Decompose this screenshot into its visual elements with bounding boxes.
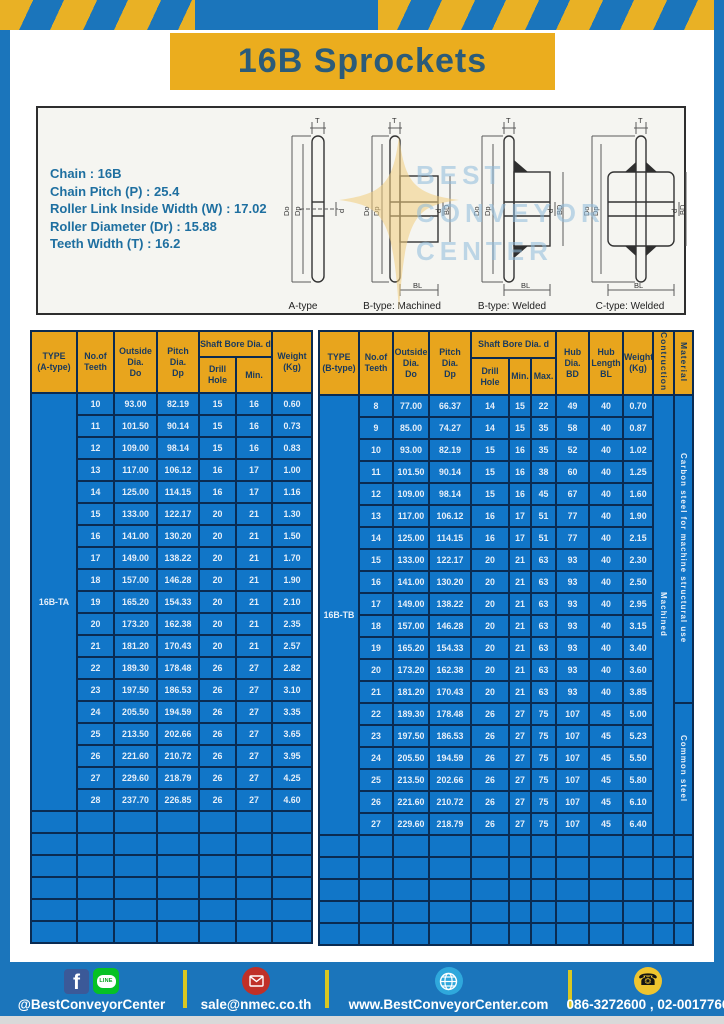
footer-phone-section: ☎ 086-3272600 , 02-0017766 xyxy=(572,962,724,1016)
table-cell: 22 xyxy=(531,395,556,417)
table-cell: 106.12 xyxy=(429,505,471,527)
table-cell: 40 xyxy=(589,395,623,417)
table-cell: 117.00 xyxy=(393,505,429,527)
table-cell: 125.00 xyxy=(114,481,157,503)
table-cell: 162.38 xyxy=(429,659,471,681)
empty-cell xyxy=(31,877,77,899)
table-cell: 15 xyxy=(77,503,114,525)
table-cell: 165.20 xyxy=(114,591,157,613)
table-row: 15133.00122.1720216393402.30 xyxy=(319,549,693,571)
col-header-material: Material xyxy=(674,331,693,395)
empty-cell xyxy=(77,921,114,943)
table-row: 16B-TA1093.0082.1915160.60 xyxy=(31,393,312,415)
empty-cell xyxy=(509,835,531,857)
dim-label-dp: Dp xyxy=(591,206,600,216)
empty-cell xyxy=(429,857,471,879)
empty-cell xyxy=(114,811,157,833)
catalog-page: 16B Sprockets Chain : 16B Chain Pitch (P… xyxy=(0,0,724,1024)
table-cell: 93 xyxy=(556,681,589,703)
table-row: 22189.30178.48262775107455.00Common stee… xyxy=(319,703,693,725)
table-row: 18157.00146.2820216393403.15 xyxy=(319,615,693,637)
empty-cell xyxy=(531,901,556,923)
table-cell: 20 xyxy=(199,503,236,525)
table-cell: 15 xyxy=(199,415,236,437)
table-cell: 35 xyxy=(531,439,556,461)
empty-cell xyxy=(157,877,199,899)
table-cell: 93 xyxy=(556,659,589,681)
dim-label-do: Do xyxy=(362,206,371,216)
hazard-bar xyxy=(0,0,724,30)
empty-cell xyxy=(509,857,531,879)
table-cell: 1.50 xyxy=(272,525,312,547)
table-cell: 20 xyxy=(471,615,509,637)
table-row: 14125.00114.1516175177402.15 xyxy=(319,527,693,549)
table-cell: 45 xyxy=(589,725,623,747)
spec-table-a-type: TYPE (A-type) No.of Teeth Outside Dia. D… xyxy=(30,330,313,944)
table-cell: 63 xyxy=(531,549,556,571)
table-cell: 194.59 xyxy=(157,701,199,723)
table-cell: 45 xyxy=(531,483,556,505)
table-row: 21181.20170.4320216393403.85 xyxy=(319,681,693,703)
table-row xyxy=(319,879,693,901)
empty-cell xyxy=(429,901,471,923)
table-cell: 21 xyxy=(359,681,393,703)
table-cell: 26 xyxy=(199,657,236,679)
title-banner: 16B Sprockets xyxy=(170,33,555,90)
empty-cell xyxy=(157,833,199,855)
table-row xyxy=(319,923,693,945)
table-cell: 27 xyxy=(509,747,531,769)
empty-cell xyxy=(199,921,236,943)
table-cell: 98.14 xyxy=(429,483,471,505)
table-cell: 2.57 xyxy=(272,635,312,657)
table-cell: 21 xyxy=(236,569,272,591)
table-cell: 15 xyxy=(471,461,509,483)
empty-cell xyxy=(589,901,623,923)
empty-cell xyxy=(77,877,114,899)
table-cell: 202.66 xyxy=(429,769,471,791)
table-cell: 26 xyxy=(471,791,509,813)
empty-cell xyxy=(471,835,509,857)
table-cell: 1.90 xyxy=(272,569,312,591)
table-cell: 165.20 xyxy=(393,637,429,659)
dim-label-bl: BL xyxy=(634,281,643,290)
table-cell: 82.19 xyxy=(429,439,471,461)
table-cell: 197.50 xyxy=(393,725,429,747)
table-cell: 0.70 xyxy=(623,395,653,417)
table-cell: 170.43 xyxy=(429,681,471,703)
table-cell: 3.40 xyxy=(623,637,653,659)
table-cell: 3.35 xyxy=(272,701,312,723)
table-row xyxy=(319,857,693,879)
col-header-min: Min. xyxy=(236,357,272,393)
technical-drawings: T Do Dp d A-type xyxy=(258,114,686,314)
table-cell: 21 xyxy=(509,549,531,571)
phone-icon: ☎ xyxy=(634,967,662,995)
table-cell: 154.33 xyxy=(157,591,199,613)
table-cell: 4.25 xyxy=(272,767,312,789)
table-cell: 189.30 xyxy=(114,657,157,679)
table-cell: 40 xyxy=(589,549,623,571)
col-header-min: Min. xyxy=(509,358,531,395)
table-cell: 109.00 xyxy=(393,483,429,505)
table-row xyxy=(31,877,312,899)
drawing-b-machined: T Do Dp d BD xyxy=(350,114,454,314)
table-cell: 229.60 xyxy=(393,813,429,835)
table-cell: 77.00 xyxy=(393,395,429,417)
hazard-stripes-right xyxy=(378,0,714,30)
table-cell: 19 xyxy=(359,637,393,659)
table-cell: 3.65 xyxy=(272,723,312,745)
table-cell: 17 xyxy=(77,547,114,569)
table-cell: 18 xyxy=(359,615,393,637)
table-cell: 75 xyxy=(531,703,556,725)
table-cell: 14 xyxy=(77,481,114,503)
empty-cell xyxy=(589,835,623,857)
table-cell: 17 xyxy=(509,505,531,527)
table-cell: 1.02 xyxy=(623,439,653,461)
table-row: 26221.60210.72262775107456.10 xyxy=(319,791,693,813)
table-row: 16B-TB877.0066.3714152249400.70MachinedC… xyxy=(319,395,693,417)
table-cell: 15 xyxy=(509,417,531,439)
table-a-header: TYPE (A-type) No.of Teeth Outside Dia. D… xyxy=(31,331,312,393)
table-cell: 20 xyxy=(199,569,236,591)
dim-label-dp: Dp xyxy=(293,206,302,216)
table-cell: 15 xyxy=(359,549,393,571)
table-cell: 16 xyxy=(236,437,272,459)
empty-cell xyxy=(319,857,359,879)
table-cell: 16 xyxy=(359,571,393,593)
table-cell: 221.60 xyxy=(114,745,157,767)
empty-cell xyxy=(114,899,157,921)
table-cell: 218.79 xyxy=(429,813,471,835)
empty-cell xyxy=(556,835,589,857)
table-row xyxy=(31,833,312,855)
table-cell: 133.00 xyxy=(393,549,429,571)
table-cell: 26 xyxy=(199,767,236,789)
table-cell: 15 xyxy=(509,395,531,417)
empty-cell xyxy=(674,923,693,945)
dim-label-bl: BL xyxy=(521,281,530,290)
empty-cell xyxy=(319,835,359,857)
footer-social-handle: @BestConveyorCenter xyxy=(18,997,165,1012)
table-cell: 93.00 xyxy=(393,439,429,461)
empty-cell xyxy=(77,899,114,921)
dim-label-t: T xyxy=(392,116,397,125)
spec-line-roller-width: Roller Link Inside Width (W) : 17.02 xyxy=(50,200,267,218)
empty-cell xyxy=(359,835,393,857)
construction-cell: Machined xyxy=(653,395,674,835)
table-cell: 229.60 xyxy=(114,767,157,789)
table-a-body: 16B-TA1093.0082.1915160.6011101.5090.141… xyxy=(31,393,312,943)
empty-cell xyxy=(199,855,236,877)
table-cell: 21 xyxy=(509,593,531,615)
line-icon: LINE xyxy=(93,968,119,994)
table-cell: 26 xyxy=(471,813,509,835)
table-cell: 17 xyxy=(509,527,531,549)
table-cell: 0.83 xyxy=(272,437,312,459)
empty-cell xyxy=(236,877,272,899)
empty-cell xyxy=(236,921,272,943)
table-cell: 27 xyxy=(509,813,531,835)
empty-cell xyxy=(509,879,531,901)
table-cell: 20 xyxy=(199,525,236,547)
col-header-drill: Drill Hole xyxy=(471,358,509,395)
table-cell: 157.00 xyxy=(393,615,429,637)
table-cell: 221.60 xyxy=(393,791,429,813)
table-cell: 1.16 xyxy=(272,481,312,503)
table-cell: 20 xyxy=(199,635,236,657)
table-cell: 27 xyxy=(359,813,393,835)
empty-cell xyxy=(471,879,509,901)
col-header-teeth: No.of Teeth xyxy=(77,331,114,393)
table-cell: 21 xyxy=(236,613,272,635)
table-cell: 40 xyxy=(589,615,623,637)
table-cell: 16 xyxy=(199,481,236,503)
table-cell: 40 xyxy=(589,527,623,549)
empty-cell xyxy=(471,901,509,923)
table-cell: 26 xyxy=(471,769,509,791)
table-cell: 75 xyxy=(531,813,556,835)
table-cell: 21 xyxy=(236,591,272,613)
table-cell: 107 xyxy=(556,703,589,725)
type-label-cell: 16B-TA xyxy=(31,393,77,811)
dim-label-bl: BL xyxy=(413,281,422,290)
table-cell: 141.00 xyxy=(393,571,429,593)
table-cell: 106.12 xyxy=(157,459,199,481)
table-cell: 107 xyxy=(556,791,589,813)
empty-cell xyxy=(199,811,236,833)
bottom-edge-strip xyxy=(0,1016,724,1024)
table-cell: 63 xyxy=(531,615,556,637)
empty-cell xyxy=(31,833,77,855)
table-cell: 18 xyxy=(77,569,114,591)
table-cell: 2.30 xyxy=(623,549,653,571)
empty-cell xyxy=(199,877,236,899)
table-cell: 107 xyxy=(556,747,589,769)
empty-cell xyxy=(471,857,509,879)
table-cell: 25 xyxy=(77,723,114,745)
table-row: 25213.50202.66262775107455.80 xyxy=(319,769,693,791)
table-cell: 17 xyxy=(359,593,393,615)
table-cell: 213.50 xyxy=(393,769,429,791)
empty-cell xyxy=(199,899,236,921)
table-cell: 40 xyxy=(589,659,623,681)
col-header-weight: Weight (Kg) xyxy=(623,331,653,395)
table-cell: 117.00 xyxy=(114,459,157,481)
table-cell: 16 xyxy=(236,393,272,415)
spec-table-b-type: TYPE (B-type) No.of Teeth Outside Dia. D… xyxy=(318,330,694,946)
table-cell: 1.70 xyxy=(272,547,312,569)
drawing-a-type: T Do Dp d A-type xyxy=(258,114,348,314)
table-cell: 205.50 xyxy=(393,747,429,769)
table-cell: 75 xyxy=(531,725,556,747)
table-cell: 27 xyxy=(236,767,272,789)
table-cell: 74.27 xyxy=(429,417,471,439)
dim-label-do: Do xyxy=(282,206,291,216)
table-cell: 13 xyxy=(359,505,393,527)
table-cell: 1.30 xyxy=(272,503,312,525)
table-cell: 77 xyxy=(556,505,589,527)
table-cell: 14 xyxy=(359,527,393,549)
table-cell: 125.00 xyxy=(393,527,429,549)
empty-cell xyxy=(77,811,114,833)
table-row: 27229.60218.79262775107456.40 xyxy=(319,813,693,835)
table-cell: 20 xyxy=(359,659,393,681)
empty-cell xyxy=(236,899,272,921)
table-row: 16141.00130.2020216393402.50 xyxy=(319,571,693,593)
table-cell: 20 xyxy=(77,613,114,635)
table-cell: 13 xyxy=(77,459,114,481)
dim-label-bd: BD xyxy=(442,204,451,215)
table-cell: 21 xyxy=(509,681,531,703)
table-cell: 45 xyxy=(589,769,623,791)
empty-cell xyxy=(157,855,199,877)
empty-cell xyxy=(77,833,114,855)
empty-cell xyxy=(272,877,312,899)
table-cell: 210.72 xyxy=(157,745,199,767)
table-cell: 1.90 xyxy=(623,505,653,527)
table-cell: 40 xyxy=(589,571,623,593)
table-cell: 45 xyxy=(589,813,623,835)
table-cell: 14 xyxy=(471,417,509,439)
table-cell: 22 xyxy=(359,703,393,725)
empty-cell xyxy=(31,899,77,921)
spec-line-teeth-width: Teeth Width (T) : 16.2 xyxy=(50,235,267,253)
table-cell: 101.50 xyxy=(114,415,157,437)
table-row xyxy=(319,901,693,923)
table-cell: 16 xyxy=(509,461,531,483)
table-cell: 16 xyxy=(471,505,509,527)
empty-cell xyxy=(623,923,653,945)
table-cell: 20 xyxy=(199,613,236,635)
table-cell: 26 xyxy=(77,745,114,767)
table-cell: 93 xyxy=(556,571,589,593)
empty-cell xyxy=(319,901,359,923)
table-cell: 93 xyxy=(556,637,589,659)
table-cell: 6.10 xyxy=(623,791,653,813)
table-cell: 6.40 xyxy=(623,813,653,835)
table-cell: 149.00 xyxy=(114,547,157,569)
table-row: 20173.20162.3820216393403.60 xyxy=(319,659,693,681)
empty-cell xyxy=(429,879,471,901)
table-cell: 90.14 xyxy=(157,415,199,437)
footer-website-section: www.BestConveyorCenter.com xyxy=(329,962,568,1016)
dim-label-do: Do xyxy=(472,206,481,216)
table-cell: 98.14 xyxy=(157,437,199,459)
table-cell: 189.30 xyxy=(393,703,429,725)
table-cell: 21 xyxy=(509,615,531,637)
table-row: 985.0074.2714153558400.87 xyxy=(319,417,693,439)
empty-cell xyxy=(393,879,429,901)
table-cell: 24 xyxy=(359,747,393,769)
table-cell: 63 xyxy=(531,571,556,593)
empty-cell xyxy=(319,879,359,901)
table-cell: 170.43 xyxy=(157,635,199,657)
empty-cell xyxy=(272,855,312,877)
table-cell: 15 xyxy=(199,393,236,415)
contact-footer: f LINE @BestConveyorCenter sale@nmec.co.… xyxy=(0,962,724,1016)
table-cell: 9 xyxy=(359,417,393,439)
empty-cell xyxy=(531,879,556,901)
table-cell: 66.37 xyxy=(429,395,471,417)
table-cell: 20 xyxy=(471,571,509,593)
dim-label-t: T xyxy=(315,116,320,125)
empty-cell xyxy=(114,921,157,943)
table-cell: 130.20 xyxy=(429,571,471,593)
empty-cell xyxy=(114,833,157,855)
table-cell: 213.50 xyxy=(114,723,157,745)
table-cell: 1.25 xyxy=(623,461,653,483)
facebook-icon: f xyxy=(64,969,89,994)
table-cell: 26 xyxy=(199,723,236,745)
table-cell: 27 xyxy=(236,657,272,679)
dim-label-do: Do xyxy=(582,206,591,216)
table-cell: 77 xyxy=(556,527,589,549)
empty-cell xyxy=(556,879,589,901)
drawing-c-welded: T Do Dp d xyxy=(570,114,690,314)
empty-cell xyxy=(653,879,674,901)
table-cell: 5.80 xyxy=(623,769,653,791)
table-cell: 14 xyxy=(471,395,509,417)
footer-website: www.BestConveyorCenter.com xyxy=(349,997,549,1012)
table-cell: 107 xyxy=(556,769,589,791)
drawing-caption-a: A-type xyxy=(289,301,318,312)
table-cell: 114.15 xyxy=(429,527,471,549)
table-cell: 15 xyxy=(199,437,236,459)
empty-cell xyxy=(199,833,236,855)
empty-cell xyxy=(31,921,77,943)
table-row xyxy=(31,921,312,943)
table-cell: 27 xyxy=(509,769,531,791)
table-cell: 21 xyxy=(509,571,531,593)
empty-cell xyxy=(157,899,199,921)
table-cell: 16 xyxy=(236,415,272,437)
table-cell: 40 xyxy=(589,439,623,461)
table-cell: 3.10 xyxy=(272,679,312,701)
table-cell: 51 xyxy=(531,527,556,549)
dim-label-dp: Dp xyxy=(483,206,492,216)
empty-cell xyxy=(556,857,589,879)
table-cell: 20 xyxy=(471,659,509,681)
table-cell: 3.95 xyxy=(272,745,312,767)
empty-cell xyxy=(674,901,693,923)
table-cell: 27 xyxy=(77,767,114,789)
table-cell: 40 xyxy=(589,593,623,615)
table-cell: 93 xyxy=(556,593,589,615)
table-cell: 35 xyxy=(531,417,556,439)
col-header-drill: Drill Hole xyxy=(199,357,236,393)
empty-cell xyxy=(114,855,157,877)
empty-cell xyxy=(393,901,429,923)
empty-cell xyxy=(589,857,623,879)
table-cell: 5.50 xyxy=(623,747,653,769)
dim-label-d: d xyxy=(546,209,555,213)
dim-label-bd: BD xyxy=(555,204,564,215)
table-cell: 40 xyxy=(589,483,623,505)
table-cell: 22 xyxy=(77,657,114,679)
table-cell: 82.19 xyxy=(157,393,199,415)
drawing-caption-b-machined: B-type: Machined xyxy=(363,301,441,312)
empty-cell xyxy=(674,835,693,857)
empty-cell xyxy=(272,811,312,833)
table-cell: 133.00 xyxy=(114,503,157,525)
table-row: 17149.00138.2220216393402.95 xyxy=(319,593,693,615)
empty-cell xyxy=(359,857,393,879)
table-cell: 27 xyxy=(509,791,531,813)
table-cell: 63 xyxy=(531,637,556,659)
table-cell: 10 xyxy=(77,393,114,415)
